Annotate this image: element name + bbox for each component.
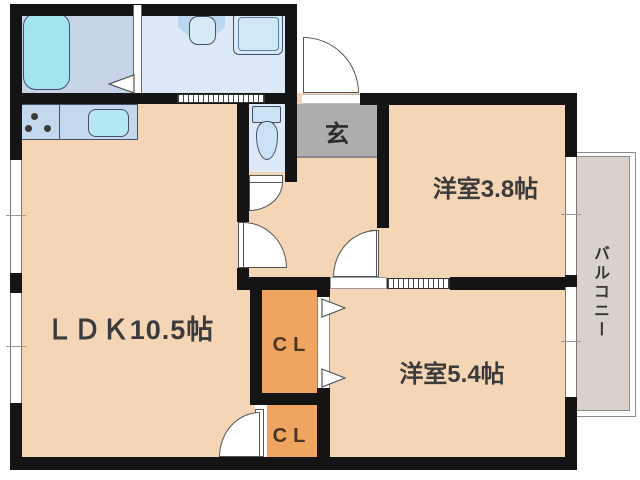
room-label-entrance: 玄 <box>312 115 362 147</box>
window <box>565 287 577 397</box>
window <box>10 293 22 403</box>
room-label-ldk: ＬＤＫ10.5帖 <box>25 310 235 344</box>
vanity-basin <box>189 16 216 45</box>
room-label-western54: 洋室5.4帖 <box>362 356 542 386</box>
room-label-closet-lower: CL <box>263 422 317 450</box>
wall <box>377 93 389 228</box>
folding-door-icon <box>108 74 135 94</box>
wall <box>377 93 577 105</box>
stove-burner-icon <box>25 125 32 132</box>
window-tick <box>6 346 26 347</box>
wall <box>450 277 565 290</box>
entry-threshold <box>302 94 360 104</box>
wall <box>10 457 577 470</box>
wall <box>285 4 297 104</box>
wall <box>250 393 327 405</box>
room-label-balcony: バルコニー <box>584 222 614 362</box>
wall <box>250 277 262 405</box>
wall <box>237 93 249 182</box>
sliding-door-icon <box>177 94 265 103</box>
kitchen-sink <box>88 109 129 137</box>
wall <box>360 93 377 105</box>
sliding-door-icon <box>387 278 450 289</box>
wall <box>317 277 330 297</box>
stove-burner-icon <box>31 113 38 120</box>
counter-divider <box>59 105 60 139</box>
washing-machine-pan <box>233 12 283 55</box>
floorplan-canvas: ＬＤＫ10.5帖 洋室3.8帖 洋室5.4帖 玄 CL CL バルコニー <box>0 0 640 480</box>
folding-door-icon <box>321 368 346 388</box>
entry-door-arc-icon <box>303 37 359 93</box>
entrance-step-line <box>297 156 377 158</box>
wall <box>565 93 577 460</box>
wall <box>237 182 249 222</box>
stove-burner-icon <box>44 125 51 132</box>
washing-machine <box>238 17 279 51</box>
kitchen-counter <box>21 104 138 140</box>
wall <box>285 93 297 182</box>
folding-door-icon <box>321 298 346 318</box>
wall <box>10 4 297 16</box>
window-tick <box>561 341 581 342</box>
doorway-threshold <box>330 277 387 289</box>
window <box>10 160 22 273</box>
bathtub <box>23 13 70 90</box>
room-label-closet-upper: CL <box>263 331 317 359</box>
window-tick <box>561 214 581 215</box>
window-tick <box>6 215 26 216</box>
wall <box>317 405 330 457</box>
room-label-western38: 洋室3.8帖 <box>398 171 573 201</box>
